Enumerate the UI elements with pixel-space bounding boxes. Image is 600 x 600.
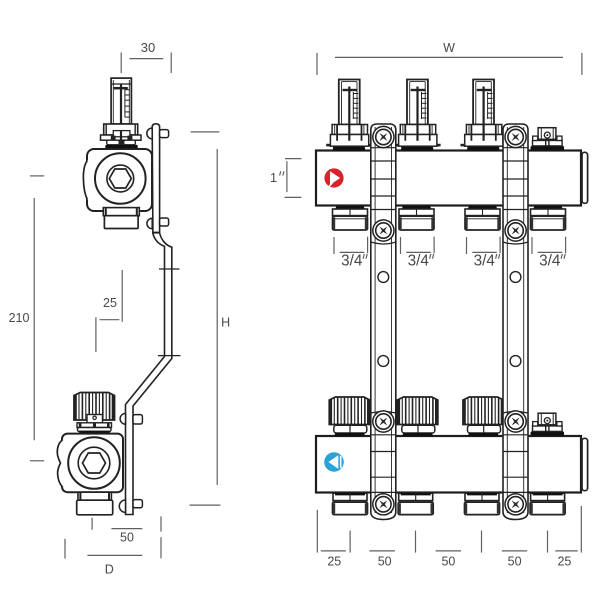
svg-text:210: 210	[9, 311, 30, 325]
svg-text:3/4: 3/4	[539, 253, 561, 270]
svg-text:50: 50	[378, 555, 392, 569]
svg-text:3/4: 3/4	[341, 253, 363, 270]
svg-text:3/4: 3/4	[474, 253, 496, 270]
svg-text:H: H	[221, 316, 230, 330]
svg-text:25: 25	[103, 296, 117, 310]
svg-text:50: 50	[441, 555, 455, 569]
svg-text:25: 25	[557, 555, 571, 569]
svg-text:W: W	[443, 41, 455, 55]
svg-text:50: 50	[508, 555, 522, 569]
svg-text:50: 50	[120, 531, 134, 545]
svg-text:30: 30	[141, 40, 155, 55]
svg-text:D: D	[105, 562, 114, 576]
svg-text:3/4: 3/4	[408, 253, 430, 270]
svg-text:1: 1	[270, 171, 277, 185]
svg-text:25: 25	[327, 555, 341, 569]
